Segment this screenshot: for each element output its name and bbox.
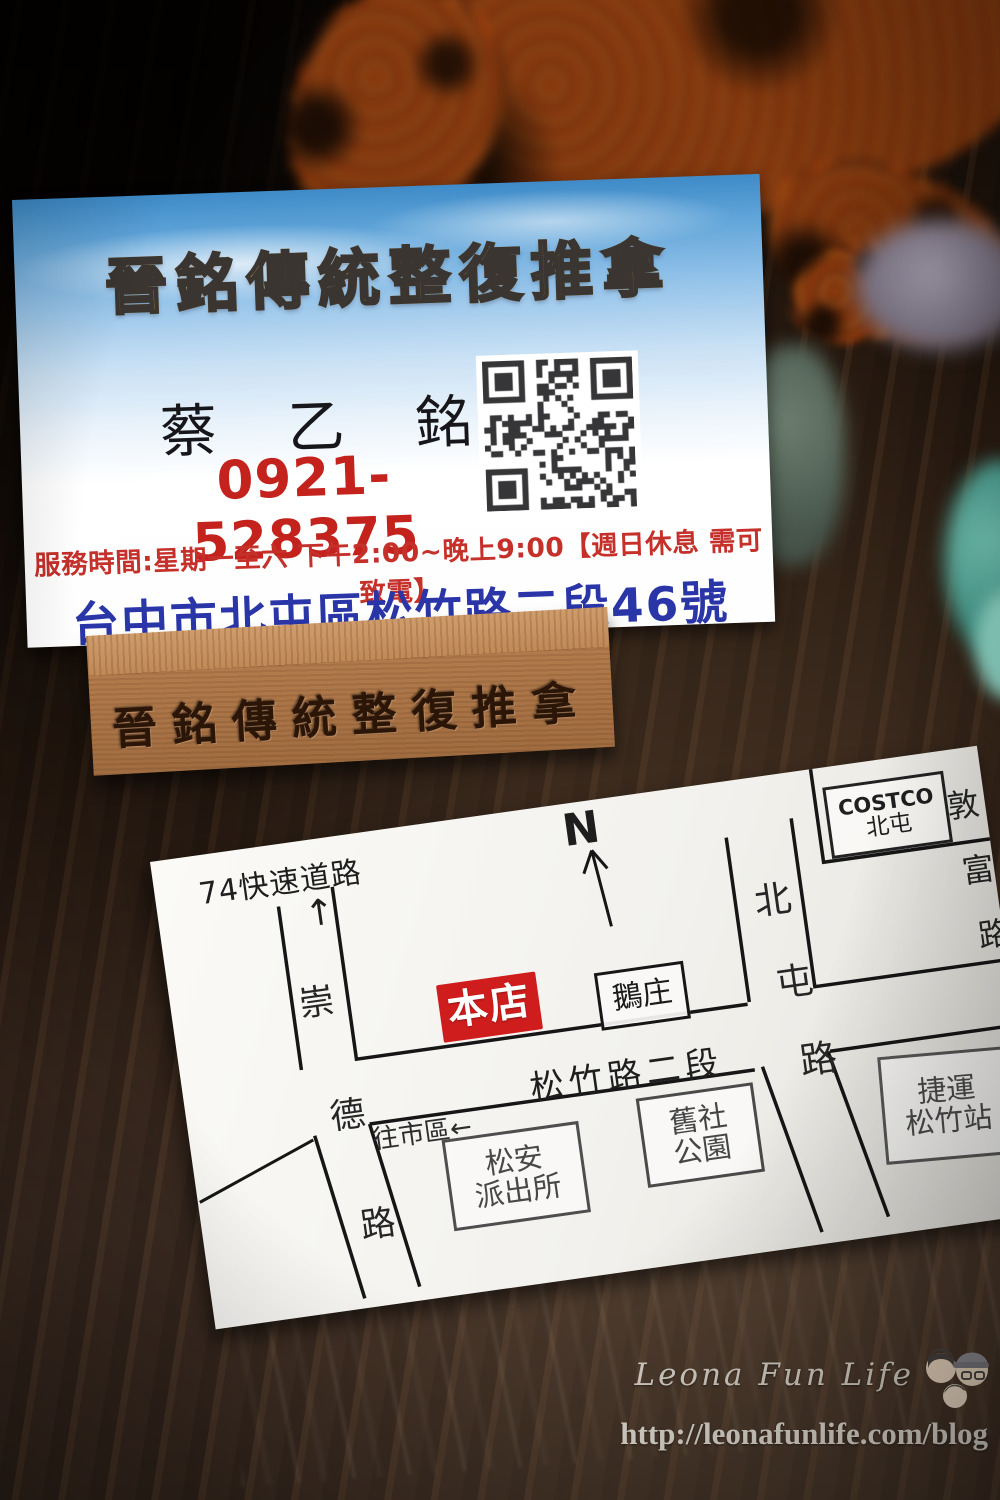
shop-title: 晉銘傳統整復推拿: [13, 214, 764, 330]
watermark-site-name: Leona Fun Life: [634, 1357, 914, 1393]
qr-code-canvas: [482, 356, 637, 511]
wood-stand: 晉銘傳統整復推拿: [86, 607, 615, 776]
costco-line2: 北屯: [865, 811, 914, 842]
road-char: 德: [326, 1085, 368, 1140]
road-line: [315, 1132, 365, 1302]
road-char: 路: [357, 1194, 399, 1249]
road-char: 北: [750, 867, 794, 926]
road-line: [762, 1062, 822, 1237]
landmark-park: 舊社 公園: [636, 1082, 765, 1188]
mrt-line2: 松竹站: [904, 1102, 993, 1141]
watermark: Leona Fun Life http://leonafunlife.com/b…: [620, 1336, 992, 1452]
road-char: 崇: [295, 972, 337, 1027]
compass-north-label: N: [559, 801, 603, 857]
park-line2: 公園: [672, 1131, 734, 1170]
road-char: 富: [959, 843, 997, 893]
landmark-mrt-station: 捷運 松竹站: [877, 1046, 1000, 1165]
road-line: [193, 1140, 319, 1202]
landmark-police-station: 松安 派出所: [442, 1121, 591, 1231]
qr-code-icon: [476, 350, 644, 518]
road-line: [726, 838, 749, 1002]
business-card: 晉銘傳統整復推拿 蔡 乙 銘 0921-528375 服務時間:星期一至六 下午…: [12, 174, 775, 648]
watermark-url: http://leonafunlife.com/blog: [620, 1416, 992, 1452]
landmark-goose-restaurant: 鵝庄: [594, 961, 691, 1031]
family-avatar-icon: [920, 1336, 992, 1414]
road-char: 路: [796, 1027, 840, 1086]
stand-engraving: 晉銘傳統整復推拿: [110, 665, 593, 757]
road-line: [830, 1025, 1000, 1051]
road-char: 屯: [772, 949, 816, 1008]
up-arrow-icon: ↑: [302, 891, 338, 936]
